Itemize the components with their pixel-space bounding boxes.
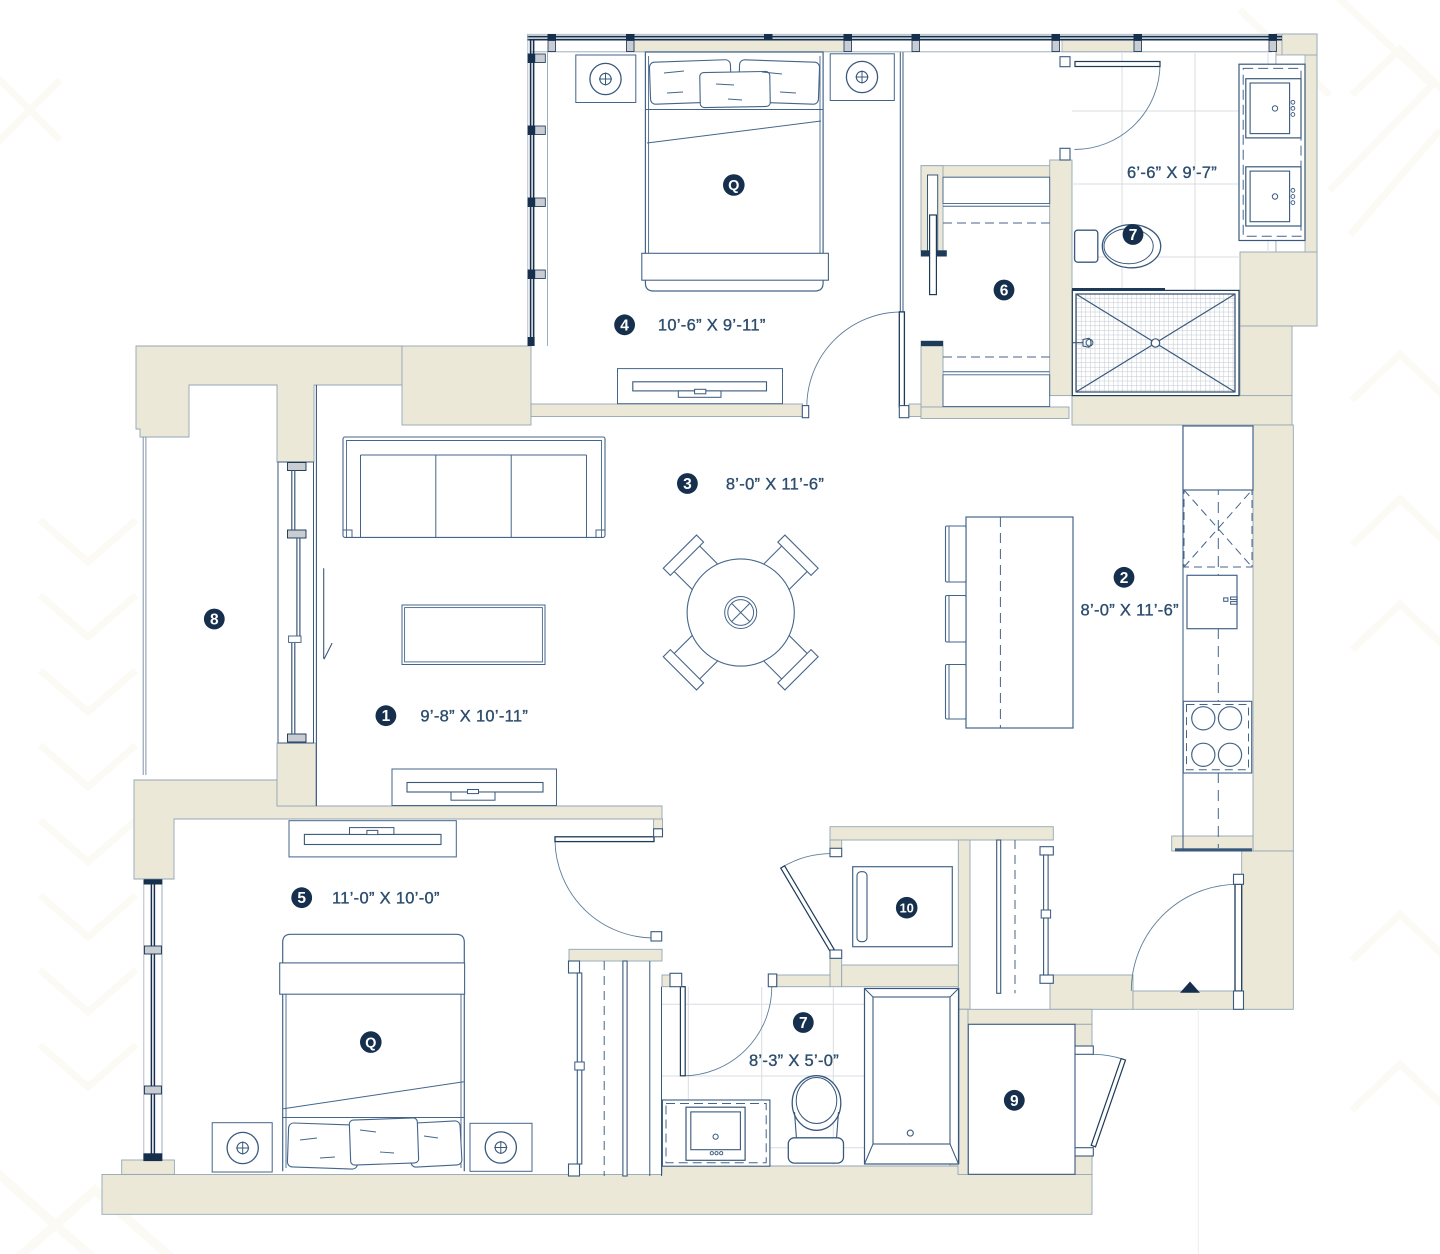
svg-text:1: 1 <box>382 708 391 725</box>
svg-text:3: 3 <box>683 476 692 493</box>
svg-text:Q: Q <box>728 178 739 194</box>
svg-text:7: 7 <box>1129 227 1138 244</box>
svg-text:9: 9 <box>1010 1093 1019 1110</box>
svg-text:8’-0” X 11’-6”: 8’-0” X 11’-6” <box>726 475 824 493</box>
svg-text:6: 6 <box>1000 283 1009 300</box>
svg-text:10: 10 <box>899 900 913 915</box>
svg-text:4: 4 <box>620 317 629 334</box>
svg-text:10’-6” X 9’-11”: 10’-6” X 9’-11” <box>658 317 766 335</box>
svg-text:2: 2 <box>1120 570 1129 587</box>
svg-text:8’-0” X 11’-6”: 8’-0” X 11’-6” <box>1081 601 1179 619</box>
svg-text:8: 8 <box>210 612 219 629</box>
svg-text:8’-3” X 5’-0”: 8’-3” X 5’-0” <box>749 1052 839 1070</box>
svg-text:6’-6” X 9’-7”: 6’-6” X 9’-7” <box>1127 164 1217 182</box>
svg-text:7: 7 <box>799 1015 808 1032</box>
svg-text:Q: Q <box>365 1035 376 1051</box>
svg-text:11’-0” X 10’-0”: 11’-0” X 10’-0” <box>332 889 440 907</box>
svg-text:9’-8” X 10’-11”: 9’-8” X 10’-11” <box>420 707 528 725</box>
svg-text:5: 5 <box>297 890 306 907</box>
